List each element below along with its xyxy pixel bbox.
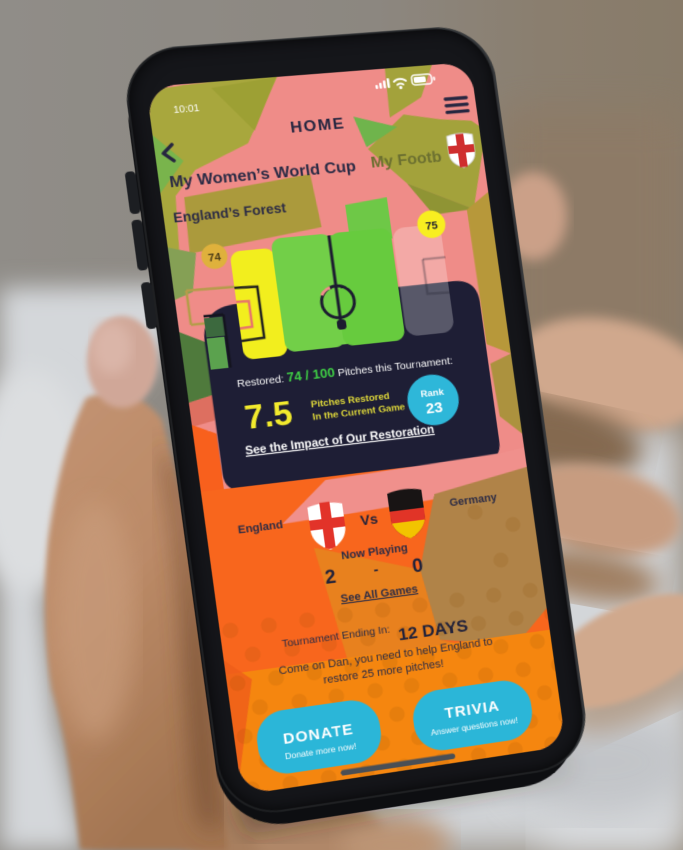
- svg-text:7.5: 7.5: [242, 395, 294, 437]
- svg-text:74: 74: [207, 252, 222, 265]
- svg-text:10:01: 10:01: [173, 103, 201, 116]
- svg-text:75: 75: [425, 220, 439, 233]
- svg-text:23: 23: [425, 399, 444, 417]
- svg-text:Vs: Vs: [359, 512, 378, 530]
